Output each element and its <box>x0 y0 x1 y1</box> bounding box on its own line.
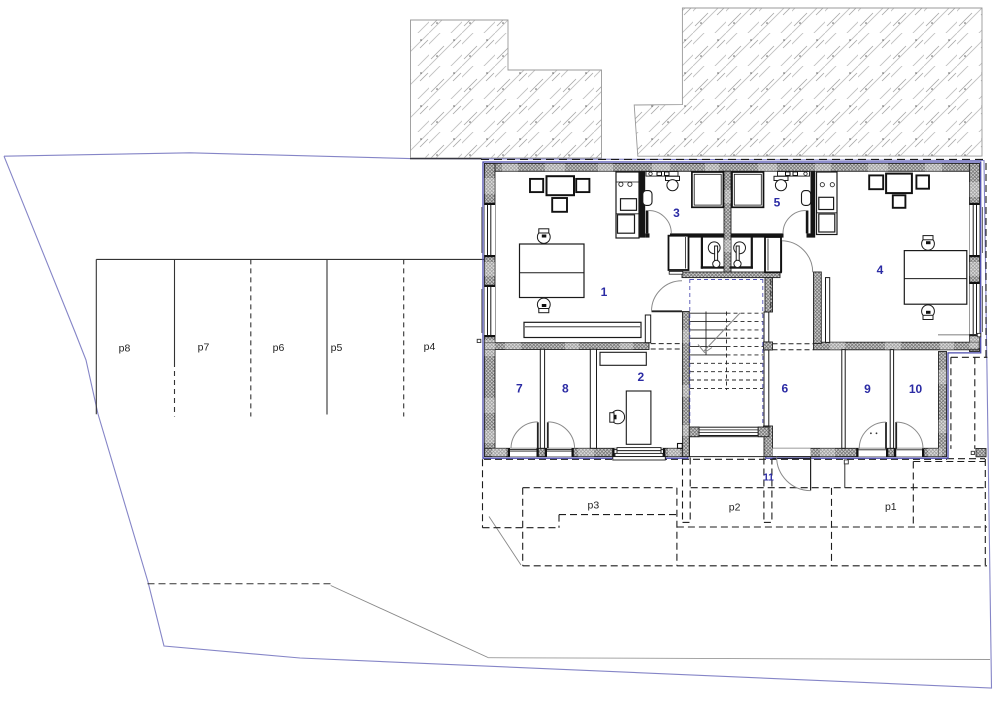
svg-text:p8: p8 <box>119 343 131 355</box>
svg-text:11: 11 <box>763 473 774 484</box>
svg-text:p7: p7 <box>198 342 210 354</box>
svg-text:4: 4 <box>877 263 884 277</box>
svg-text:5: 5 <box>774 196 781 210</box>
svg-text:8: 8 <box>562 382 569 396</box>
svg-text:p1: p1 <box>885 501 897 513</box>
svg-text:p3: p3 <box>588 500 600 512</box>
svg-text:p2: p2 <box>729 502 741 514</box>
svg-text:7: 7 <box>516 382 523 396</box>
svg-text:6: 6 <box>782 382 789 396</box>
svg-text:10: 10 <box>909 382 923 396</box>
svg-text:p4: p4 <box>424 341 436 353</box>
svg-text:3: 3 <box>673 206 680 220</box>
svg-text:p6: p6 <box>273 342 285 354</box>
svg-text:p5: p5 <box>331 342 343 354</box>
svg-text:2: 2 <box>637 370 644 384</box>
svg-text:9: 9 <box>864 382 871 396</box>
svg-text:1: 1 <box>601 285 608 299</box>
